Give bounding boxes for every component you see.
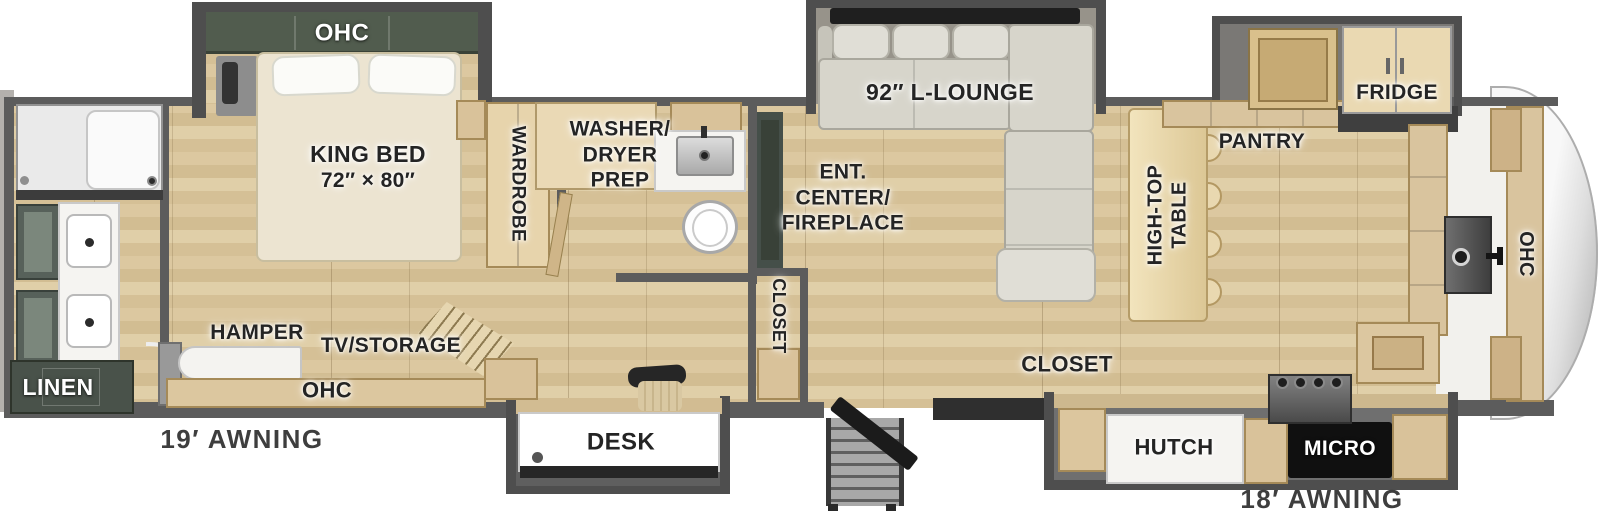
- bedroom-slide-wall-top: [192, 2, 492, 12]
- shower-sill: [16, 190, 163, 200]
- vanity-mirror-top-inset: [24, 212, 52, 272]
- dresser-ohc-label: OHC: [302, 378, 352, 405]
- king-bed-label-line1: KING BED: [310, 140, 426, 168]
- fridge-label: FRIDGE: [1356, 80, 1438, 106]
- hall-closet-label: CLOSET: [767, 278, 789, 353]
- lounge-slide-wall-left: [806, 0, 816, 114]
- hamper-label: HAMPER: [210, 320, 303, 346]
- kitchen-slide-wall-right: [1448, 392, 1458, 490]
- ent-center-unit-inset: [761, 120, 779, 260]
- washer-dryer-label-line2: DRYER: [570, 142, 671, 168]
- kitchen-counter-seam3: [1410, 284, 1446, 286]
- sofa-chaise-seam2: [1006, 244, 1092, 246]
- sofa-chaise-end-cushion: [996, 248, 1096, 302]
- lounge-slide-wall-right: [1096, 0, 1106, 114]
- desk-slide-wall-left: [506, 396, 516, 494]
- wall-hallcloset-right: [800, 268, 808, 402]
- burner-2: [1294, 376, 1307, 389]
- shower-drain-icon: [147, 176, 157, 186]
- bedroom-ohc-seam2: [388, 16, 390, 50]
- bedroom-slide-wall-right: [478, 2, 492, 102]
- wall-top-front: [1452, 97, 1558, 106]
- kitchen-counter-seam2: [1410, 230, 1446, 232]
- ent-center-label: ENT. CENTER/ FIREPLACE: [782, 160, 905, 237]
- kitchen-slide-wood-mid: [1244, 418, 1288, 484]
- entry-platform: [933, 398, 1048, 420]
- burner-1: [1276, 376, 1289, 389]
- lounge-window: [830, 8, 1080, 24]
- kitchen-slide-counter-band: [1054, 394, 1448, 408]
- wall-hallcloset-top: [748, 268, 808, 276]
- hall-closet-cabinet: [757, 348, 800, 400]
- washer-dryer-label: WASHER/ DRYER PREP: [570, 117, 671, 194]
- sofa-chaise-seam1: [1006, 188, 1092, 190]
- sofa-back-cushion-3: [952, 24, 1010, 60]
- burner-4: [1330, 376, 1343, 389]
- sink-drain-top-icon: [85, 238, 94, 247]
- vanity-mirror-bottom-inset: [24, 298, 52, 358]
- ent-center-label-line2: CENTER/: [782, 185, 905, 211]
- front-ohc-bottom: [1490, 336, 1522, 400]
- desk-slide-wall-bottom: [506, 486, 730, 494]
- kitchen-island-drawer: [1372, 336, 1424, 370]
- burner-3: [1312, 376, 1325, 389]
- pillow-right: [367, 53, 456, 96]
- hamper-counter: [178, 346, 302, 380]
- micro-label: MICRO: [1304, 436, 1376, 462]
- kitchen-slide-wall-left: [1044, 392, 1054, 490]
- wall-hallcloset-left: [748, 268, 756, 402]
- desk-side-cabinet: [484, 358, 538, 400]
- high-top-table-label: HIGH-TOP TABLE: [1144, 165, 1193, 266]
- bedroom-slide-wall-left: [192, 2, 206, 118]
- fridge-slide-wall-right: [1454, 16, 1462, 116]
- sink-drain-bottom-icon: [85, 318, 94, 327]
- pillow-left: [271, 53, 360, 96]
- toilet-bowl: [692, 209, 728, 247]
- bedroom-side-cabinet-inset: [222, 62, 238, 104]
- kitchen-slide-wood-right: [1392, 414, 1448, 480]
- entry-closet-label: CLOSET: [1021, 352, 1113, 379]
- pantry-label: PANTRY: [1219, 129, 1305, 155]
- high-top-table-label-line1: HIGH-TOP: [1144, 165, 1168, 266]
- ent-center-label-line1: ENT.: [782, 160, 905, 186]
- awning-right-label: 18′ AWNING: [1240, 484, 1403, 513]
- hutch-label: HUTCH: [1135, 435, 1214, 462]
- bedroom-ohc-seam1: [294, 16, 296, 50]
- awning-left-label: 19′ AWNING: [160, 424, 323, 456]
- entry-closet-cabinet: [1058, 408, 1106, 472]
- entry-step-foot-right: [886, 504, 896, 511]
- pantry-seam1: [1210, 102, 1212, 126]
- high-top-table-label-line2: TABLE: [1168, 165, 1192, 266]
- wall-bottom-front: [1450, 400, 1554, 416]
- desk-front-edge: [520, 466, 718, 478]
- linen-label: LINEN: [23, 373, 94, 401]
- lounge-label: 92″ L-LOUNGE: [866, 78, 1034, 106]
- washer-dryer-label-line1: WASHER/: [570, 117, 671, 143]
- bedroom-ohc-label: OHC: [315, 18, 370, 47]
- entry-step-foot-left: [828, 504, 838, 511]
- king-bed-label-line2: 72″ × 80″: [310, 168, 426, 194]
- lounge-slide-wall-top: [806, 0, 1106, 8]
- desk-label: DESK: [587, 427, 655, 456]
- ent-center-label-line3: FIREPLACE: [782, 211, 905, 237]
- front-ohc-top: [1490, 108, 1522, 172]
- sofa-back-cushion-2: [892, 24, 950, 60]
- kitchen-counter-seam1: [1410, 176, 1446, 178]
- rv-floorplan: OHC KING BED 72″ × 80″ WARDROBE WASHER/ …: [0, 0, 1600, 513]
- front-sink-drain-icon: [1452, 248, 1470, 266]
- shower-drain2-icon: [20, 176, 29, 185]
- wardrobe-label: WARDROBE: [506, 126, 529, 242]
- front-ohc-label: OHC: [1514, 231, 1538, 277]
- desk-chair-seat: [638, 381, 682, 411]
- nightstand: [456, 100, 486, 140]
- midbath-faucet-icon: [701, 126, 707, 138]
- midbath-sink-drain-icon: [699, 150, 710, 161]
- wall-bottom-entry-left: [728, 402, 824, 418]
- fridge-handle-1: [1386, 58, 1390, 74]
- washer-dryer-label-line3: PREP: [570, 168, 671, 194]
- tv-storage-label: TV/STORAGE: [321, 333, 461, 359]
- desk-knob-icon: [532, 452, 543, 463]
- wall-midbath-right: [748, 100, 757, 284]
- sofa-back-cushion-1: [832, 24, 890, 60]
- king-bed-label: KING BED 72″ × 80″: [310, 140, 426, 194]
- fridge-handle-2: [1400, 58, 1404, 74]
- front-faucet-stem-icon: [1497, 247, 1503, 265]
- pantry-slide-cabinet-inset: [1258, 38, 1328, 102]
- fridge-slide-wall-top: [1212, 16, 1462, 24]
- wall-midbath-bottom: [616, 273, 757, 282]
